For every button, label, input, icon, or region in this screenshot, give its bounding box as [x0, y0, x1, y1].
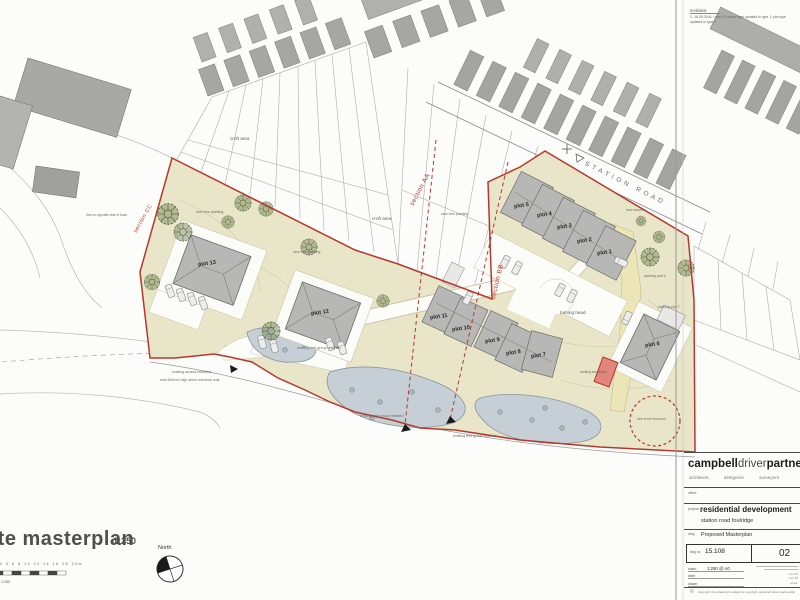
label-sub-station: existing sub station [580, 371, 607, 375]
client-label: client: [688, 491, 697, 495]
copyright-symbol: © [690, 589, 694, 595]
firm-name: campbelldriverpartnership [688, 458, 800, 470]
scalebar-numbers: 2 4 6 8 10 12 14 16 18 20m [0, 562, 83, 566]
plots-east-of-site [694, 222, 800, 392]
contact-block: t: 01 25 f: 01 25 email: [744, 564, 798, 585]
titleblock-rule [684, 587, 800, 588]
firm-part3: partnership [767, 458, 800, 470]
drawing-number-box: dwg no: 15.108 02 [686, 544, 800, 563]
label-tree-removed: tree to be removed [637, 418, 665, 422]
masterplan-drawing [0, 0, 800, 600]
drawing-label: dwg: [688, 532, 695, 536]
scale-row: scale:1:250 @ A0 [688, 566, 744, 572]
north-arrow [154, 553, 187, 586]
titleblock-rule [684, 487, 800, 488]
section-arrow [230, 365, 238, 373]
label-new-tree-2: new tree planting [293, 251, 320, 255]
project-name: residential development [700, 505, 792, 514]
label-tree-opposite: tree on opposite side of track [86, 214, 127, 218]
label-tree-group-2: existing tree group retained [360, 415, 404, 419]
label-turning-head: turning head [560, 310, 586, 315]
label-stone-wall: new 600mm high stone entrance wall [160, 379, 219, 383]
copyright-text: copyright: this drawing is subject to co… [698, 590, 795, 594]
contact-line-decor [764, 569, 798, 571]
firm-part2: driver [738, 458, 767, 470]
scalebar-scale: 1:250 [1, 580, 10, 584]
revision-value: 02 [752, 545, 800, 562]
scanned-masterplan-sheet: STATION ROAD section AA section BB secti… [0, 0, 800, 600]
label-tree-group-3: existing tree group retained [453, 435, 497, 439]
contact-email: email: [744, 581, 798, 586]
titleblock-rule [684, 529, 800, 530]
date-label: date: [688, 574, 696, 578]
titleblock-rule [684, 452, 800, 453]
terrace-far-east [686, 7, 800, 134]
label-parking-plot-6: parking plot 6 [644, 275, 666, 279]
drawn-label: drawn: [688, 582, 698, 586]
label-access-modified: existing access modified [172, 371, 211, 375]
date-row: date: [688, 574, 744, 579]
project-location: station road foulridge [701, 518, 753, 524]
label-croft-area-2: croft area [372, 216, 391, 221]
titleblock-rule [684, 503, 800, 504]
drawing-number-cell: dwg no: 15.108 [687, 545, 752, 562]
label-parking-plot-7: parking plot 7 [658, 306, 680, 310]
label-new-access: new access [626, 209, 645, 213]
firm-part1: campbell [688, 458, 738, 470]
scale-label: scale: [688, 567, 697, 571]
revisions-heading: revisions [690, 8, 720, 14]
contact-line-decor [756, 566, 798, 568]
label-new-tree-3: new tree planting [441, 213, 468, 217]
scale-bar [0, 571, 66, 575]
drawing-name: Proposed Masterplan [701, 532, 752, 538]
dwg-no-value: 15.108 [705, 548, 725, 555]
scale-value: 1:250 @ A0 [707, 566, 730, 571]
sheet-title-scale: 1:250 [113, 536, 136, 546]
revision-note: C: 16.05.29 AL / plot 1-9 house type upd… [690, 15, 796, 25]
copyright-line: ©copyright: this drawing is subject to c… [690, 589, 795, 595]
north-label: North [158, 545, 171, 551]
label-new-tree-1: new tree planting [196, 211, 223, 215]
label-tree-group-1: existing tree group retained [297, 347, 341, 351]
label-croft-area-1: croft area [230, 136, 249, 141]
dwg-no-label: dwg no: [690, 550, 701, 554]
firm-disciplines: architects designers surveyors [689, 475, 779, 480]
project-label: project: [688, 507, 699, 511]
terrace-station-road-north [454, 14, 704, 189]
